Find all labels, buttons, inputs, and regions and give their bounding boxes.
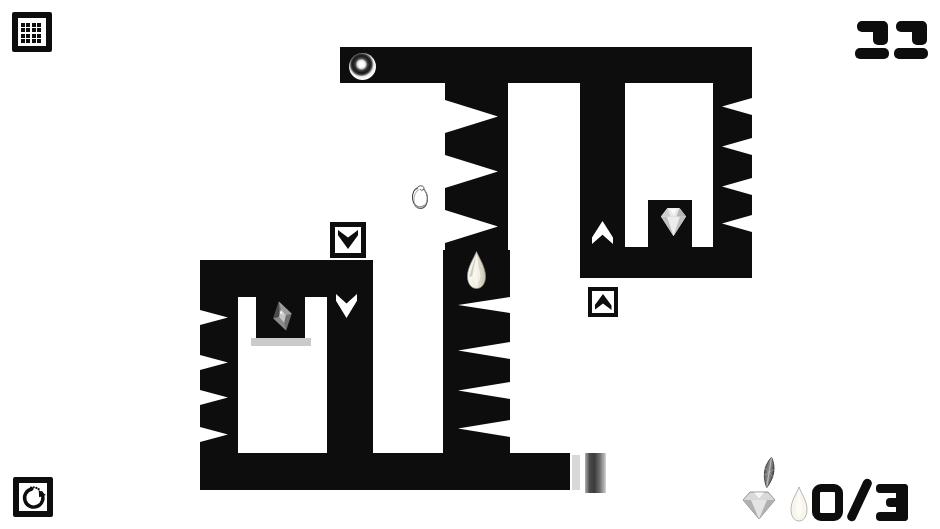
spike-notch (445, 210, 498, 243)
left-structure-right-column (327, 260, 373, 456)
spike-notch (722, 178, 752, 195)
spike-notch (200, 390, 228, 405)
spike-notch (458, 342, 510, 359)
spike-notch (200, 427, 228, 442)
digit-2-glyph (855, 21, 889, 59)
spike-notch (458, 420, 510, 437)
spike-notch (445, 100, 498, 133)
spike-notch (722, 98, 752, 115)
spike-notch (200, 355, 228, 370)
alcove-shadow (251, 338, 311, 346)
spike-notch (200, 310, 228, 325)
level-display (855, 21, 928, 59)
menu-button[interactable] (12, 12, 52, 52)
right-structure-floor (580, 247, 752, 278)
teardrop-gem (466, 250, 487, 290)
digit-3-glyph (876, 484, 908, 521)
arrow-up-switch-icon (595, 294, 612, 310)
arrow-down-switch-icon (338, 230, 358, 249)
diamond-gem-icon (743, 492, 775, 519)
restart-arrow-icon (21, 485, 46, 510)
gradient-pillar (585, 453, 606, 493)
restart-button[interactable] (13, 477, 53, 517)
spike-notch (722, 215, 752, 232)
rhombus-gem (271, 299, 294, 333)
marquise-gem-icon (761, 456, 777, 488)
portal-hole-icon (349, 53, 376, 80)
floor-edge-strip (572, 455, 580, 490)
game-stage (0, 0, 940, 529)
grid-menu-icon (21, 21, 43, 43)
doodle-character (408, 180, 432, 211)
bottom-floor (200, 453, 570, 490)
gem-counter-display (812, 477, 908, 523)
spike-notch (458, 297, 510, 313)
digit-2-glyph (894, 21, 928, 59)
digit-0-glyph (812, 484, 843, 521)
spike-notch (722, 138, 752, 155)
spike-notch (445, 155, 498, 188)
arrow-down-switch[interactable] (330, 222, 366, 258)
spike-notch (458, 382, 510, 399)
hud-gem-icons (742, 452, 814, 527)
teardrop-gem-icon (791, 487, 807, 521)
diamond-gem (659, 206, 688, 238)
top-platform (340, 47, 752, 83)
slash-glyph (846, 477, 874, 522)
arrow-up-switch[interactable] (588, 287, 618, 317)
middle-wall-upper-spikes (445, 83, 508, 250)
